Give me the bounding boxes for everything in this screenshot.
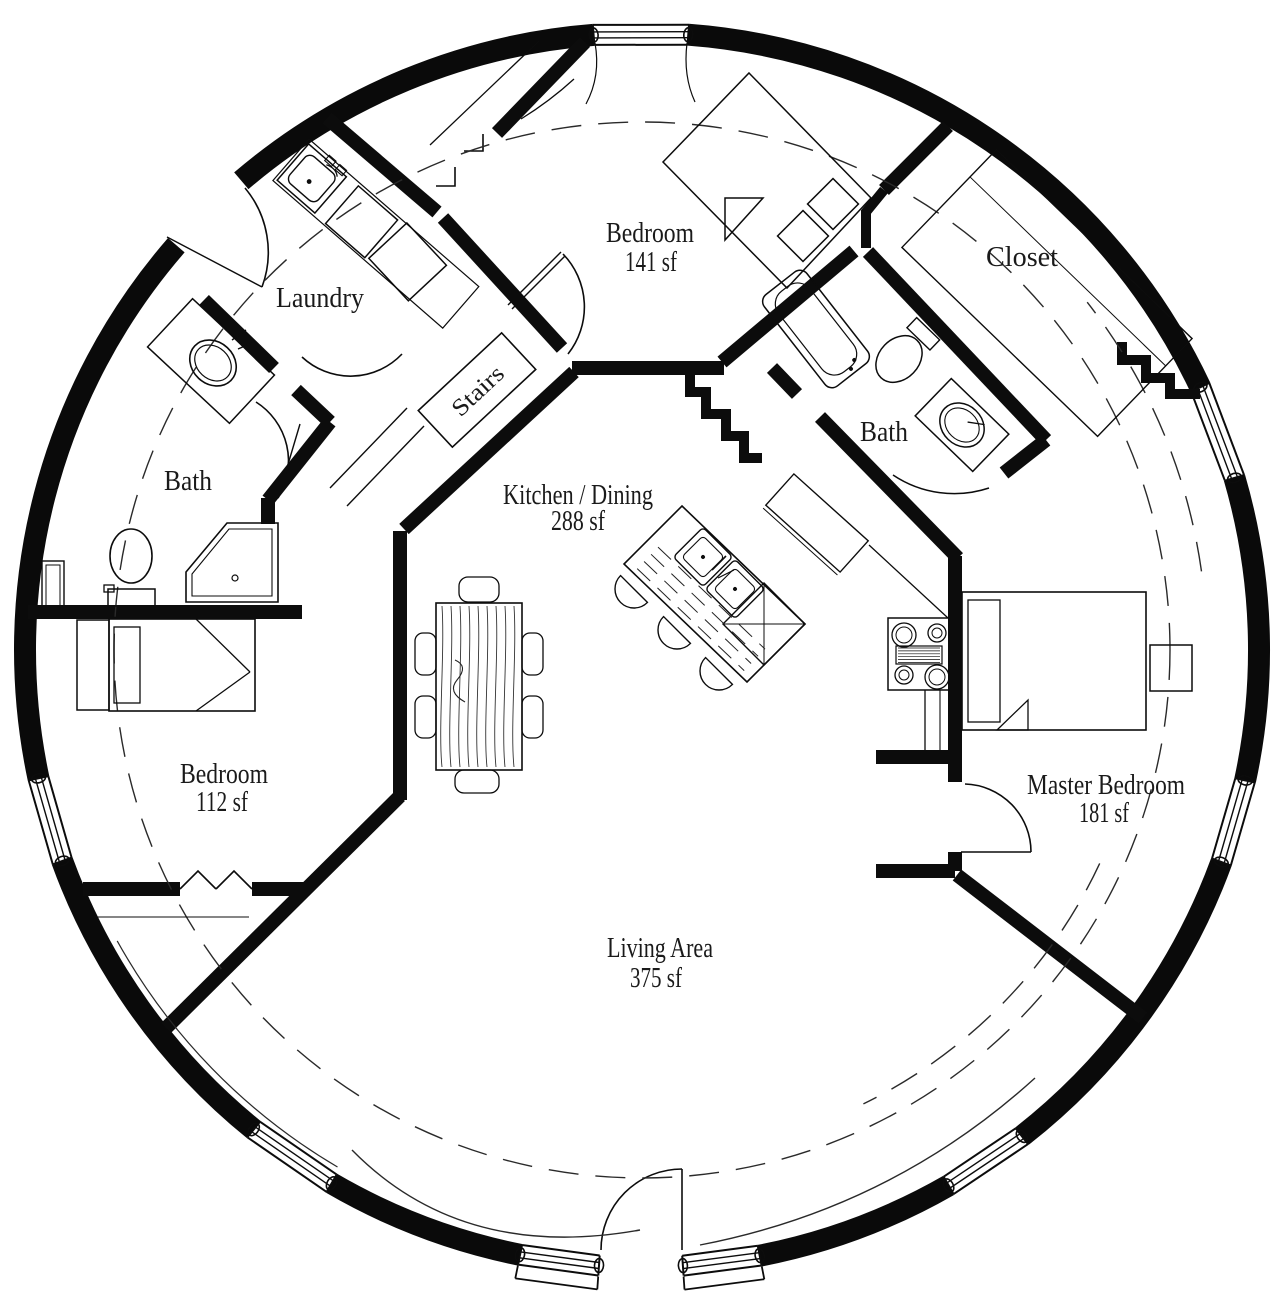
svg-text:375 sf: 375 sf xyxy=(630,962,682,994)
svg-text:Closet: Closet xyxy=(986,241,1058,273)
svg-text:112 sf: 112 sf xyxy=(196,786,248,818)
svg-text:Bath: Bath xyxy=(164,465,212,497)
svg-text:Bedroom: Bedroom xyxy=(606,217,694,249)
svg-text:Living Area: Living Area xyxy=(607,932,713,964)
svg-text:Bath: Bath xyxy=(860,416,908,448)
svg-text:288 sf: 288 sf xyxy=(551,505,605,537)
svg-text:Laundry: Laundry xyxy=(276,282,364,314)
svg-text:141 sf: 141 sf xyxy=(625,246,677,278)
svg-text:181 sf: 181 sf xyxy=(1079,797,1129,829)
